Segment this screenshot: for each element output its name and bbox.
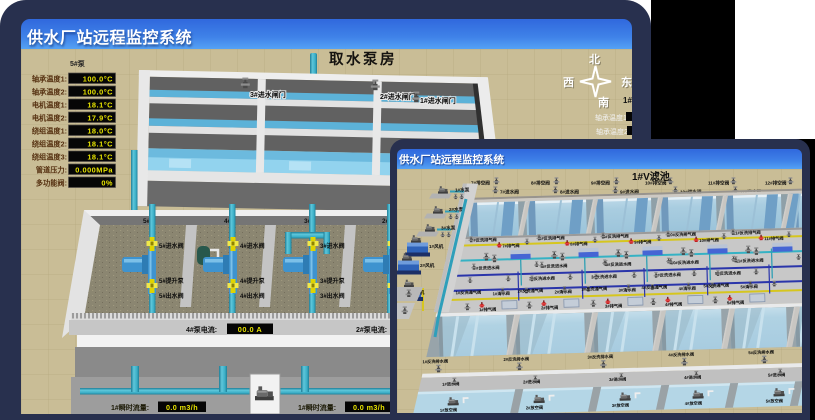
- svg-text:3#提升泵: 3#提升泵: [320, 277, 346, 285]
- svg-text:轴承温度1:: 轴承温度1:: [595, 113, 629, 122]
- svg-text:0%: 0%: [101, 178, 113, 187]
- svg-text:绕组温度1:: 绕组温度1:: [32, 127, 67, 136]
- svg-text:1#风机: 1#风机: [429, 243, 444, 250]
- svg-text:100.0°C: 100.0°C: [83, 87, 113, 96]
- svg-text:4#泵电流:: 4#泵电流:: [186, 325, 217, 334]
- svg-text:西: 西: [563, 76, 574, 89]
- svg-text:00.0 A: 00.0 A: [238, 325, 263, 334]
- svg-text:电机温度1:: 电机温度1:: [32, 101, 67, 110]
- svg-text:0.0 m3/h: 0.0 m3/h: [353, 403, 385, 412]
- svg-text:18.1°C: 18.1°C: [87, 152, 113, 161]
- svg-text:5#进水阀: 5#进水阀: [159, 242, 184, 250]
- svg-text:0.0 m3/h: 0.0 m3/h: [166, 403, 198, 412]
- svg-text:5#提升泵: 5#提升泵: [159, 277, 185, 285]
- svg-text:3#进水闸门: 3#进水闸门: [250, 90, 286, 99]
- svg-text:取水泵房: 取水泵房: [329, 50, 397, 68]
- svg-text:10#排空阀: 10#排空阀: [645, 180, 667, 187]
- svg-text:12#排空阀: 12#排空阀: [765, 180, 787, 187]
- svg-text:绕组温度2:: 绕组温度2:: [32, 140, 67, 149]
- svg-text:8#排空阀: 8#排空阀: [531, 180, 550, 187]
- svg-text:5#出水阀: 5#出水阀: [159, 292, 184, 300]
- svg-text:0.000MPa: 0.000MPa: [75, 165, 113, 174]
- svg-text:4#进水阀: 4#进水阀: [240, 242, 265, 250]
- svg-text:9#排空阀: 9#排空阀: [591, 180, 610, 187]
- svg-text:多功能阀:: 多功能阀:: [36, 179, 67, 188]
- svg-text:绕组温度3:: 绕组温度3:: [32, 153, 67, 162]
- svg-text:18.1°C: 18.1°C: [87, 100, 113, 109]
- svg-text:1#水泵: 1#水泵: [455, 187, 470, 194]
- svg-text:3#进水阀: 3#进水阀: [320, 242, 345, 250]
- svg-text:1#瞬时流量:: 1#瞬时流量:: [111, 403, 149, 412]
- svg-text:电机温度2:: 电机温度2:: [32, 114, 67, 123]
- svg-text:18.0°C: 18.0°C: [87, 126, 113, 135]
- svg-text:南: 南: [598, 95, 609, 109]
- svg-text:管道压力:: 管道压力:: [36, 166, 67, 175]
- svg-text:18.1°C: 18.1°C: [87, 139, 113, 148]
- svg-text:2#风机: 2#风机: [420, 262, 435, 269]
- svg-text:1#瞬时流量:: 1#瞬时流量:: [298, 403, 336, 412]
- svg-text:东: 东: [621, 75, 632, 89]
- svg-text:4#提升泵: 4#提升泵: [240, 277, 266, 285]
- svg-text:5#泵: 5#泵: [70, 59, 85, 68]
- svg-text:7#进水阀: 7#进水阀: [500, 189, 519, 196]
- svg-text:100.0°C: 100.0°C: [83, 74, 113, 83]
- svg-text:轴承温度2:: 轴承温度2:: [596, 127, 630, 136]
- svg-text:1#进水闸门: 1#进水闸门: [420, 96, 456, 105]
- svg-text:2#泵电流:: 2#泵电流:: [356, 325, 387, 334]
- svg-text:轴承温度1:: 轴承温度1:: [32, 75, 67, 84]
- svg-text:2#进水闸门: 2#进水闸门: [380, 92, 416, 101]
- svg-text:17.9°C: 17.9°C: [87, 113, 113, 122]
- svg-text:8#进水阀: 8#进水阀: [560, 189, 579, 196]
- svg-text:11#排空阀: 11#排空阀: [708, 180, 730, 187]
- svg-text:北: 北: [589, 52, 600, 66]
- svg-text:1#放空阀: 1#放空阀: [440, 406, 457, 413]
- svg-text:1#: 1#: [623, 96, 632, 105]
- svg-text:4#出水阀: 4#出水阀: [240, 292, 265, 300]
- svg-text:3#出水阀: 3#出水阀: [320, 292, 345, 300]
- svg-text:轴承温度2:: 轴承温度2:: [32, 88, 67, 97]
- svg-text:3#水泵: 3#水泵: [441, 225, 456, 232]
